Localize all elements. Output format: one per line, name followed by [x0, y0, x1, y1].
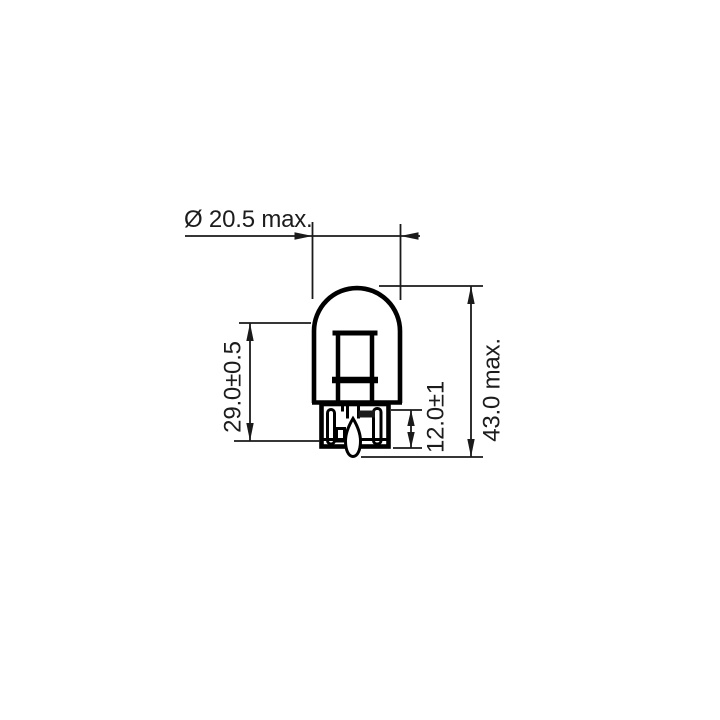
bulb-length-label: 29.0±0.5: [220, 341, 247, 433]
base-height-arrowhead-down: [407, 432, 414, 448]
overall-length-arrowhead-up: [467, 286, 474, 304]
glass-envelope-outline: [314, 288, 400, 403]
base-height-arrowhead-up: [407, 410, 414, 426]
diameter-label: Ø 20.5 max.: [184, 206, 313, 233]
wedge-base: [322, 404, 389, 457]
overall-length-arrowhead-down: [467, 439, 474, 457]
diameter-arrowhead-left: [401, 232, 419, 240]
bulb-length-arrowhead-down: [246, 423, 253, 441]
base-height-label: 12.0±1: [423, 381, 450, 453]
base-crossbar: [359, 411, 376, 418]
bulb-figure: [312, 288, 402, 456]
filament-mount: [332, 333, 378, 402]
bulb-length-arrowhead-up: [246, 323, 253, 341]
exhaust-tip: [346, 419, 361, 457]
dimension-bulb-length: 29.0±0.5: [220, 323, 321, 441]
drawing-canvas: Ø 20.5 max. 29.0±0.5 43.0 max.: [0, 0, 720, 720]
bulb-technical-drawing: Ø 20.5 max. 29.0±0.5 43.0 max.: [0, 0, 720, 720]
diameter-arrowhead-right: [295, 232, 313, 240]
overall-length-label: 43.0 max.: [479, 338, 506, 442]
